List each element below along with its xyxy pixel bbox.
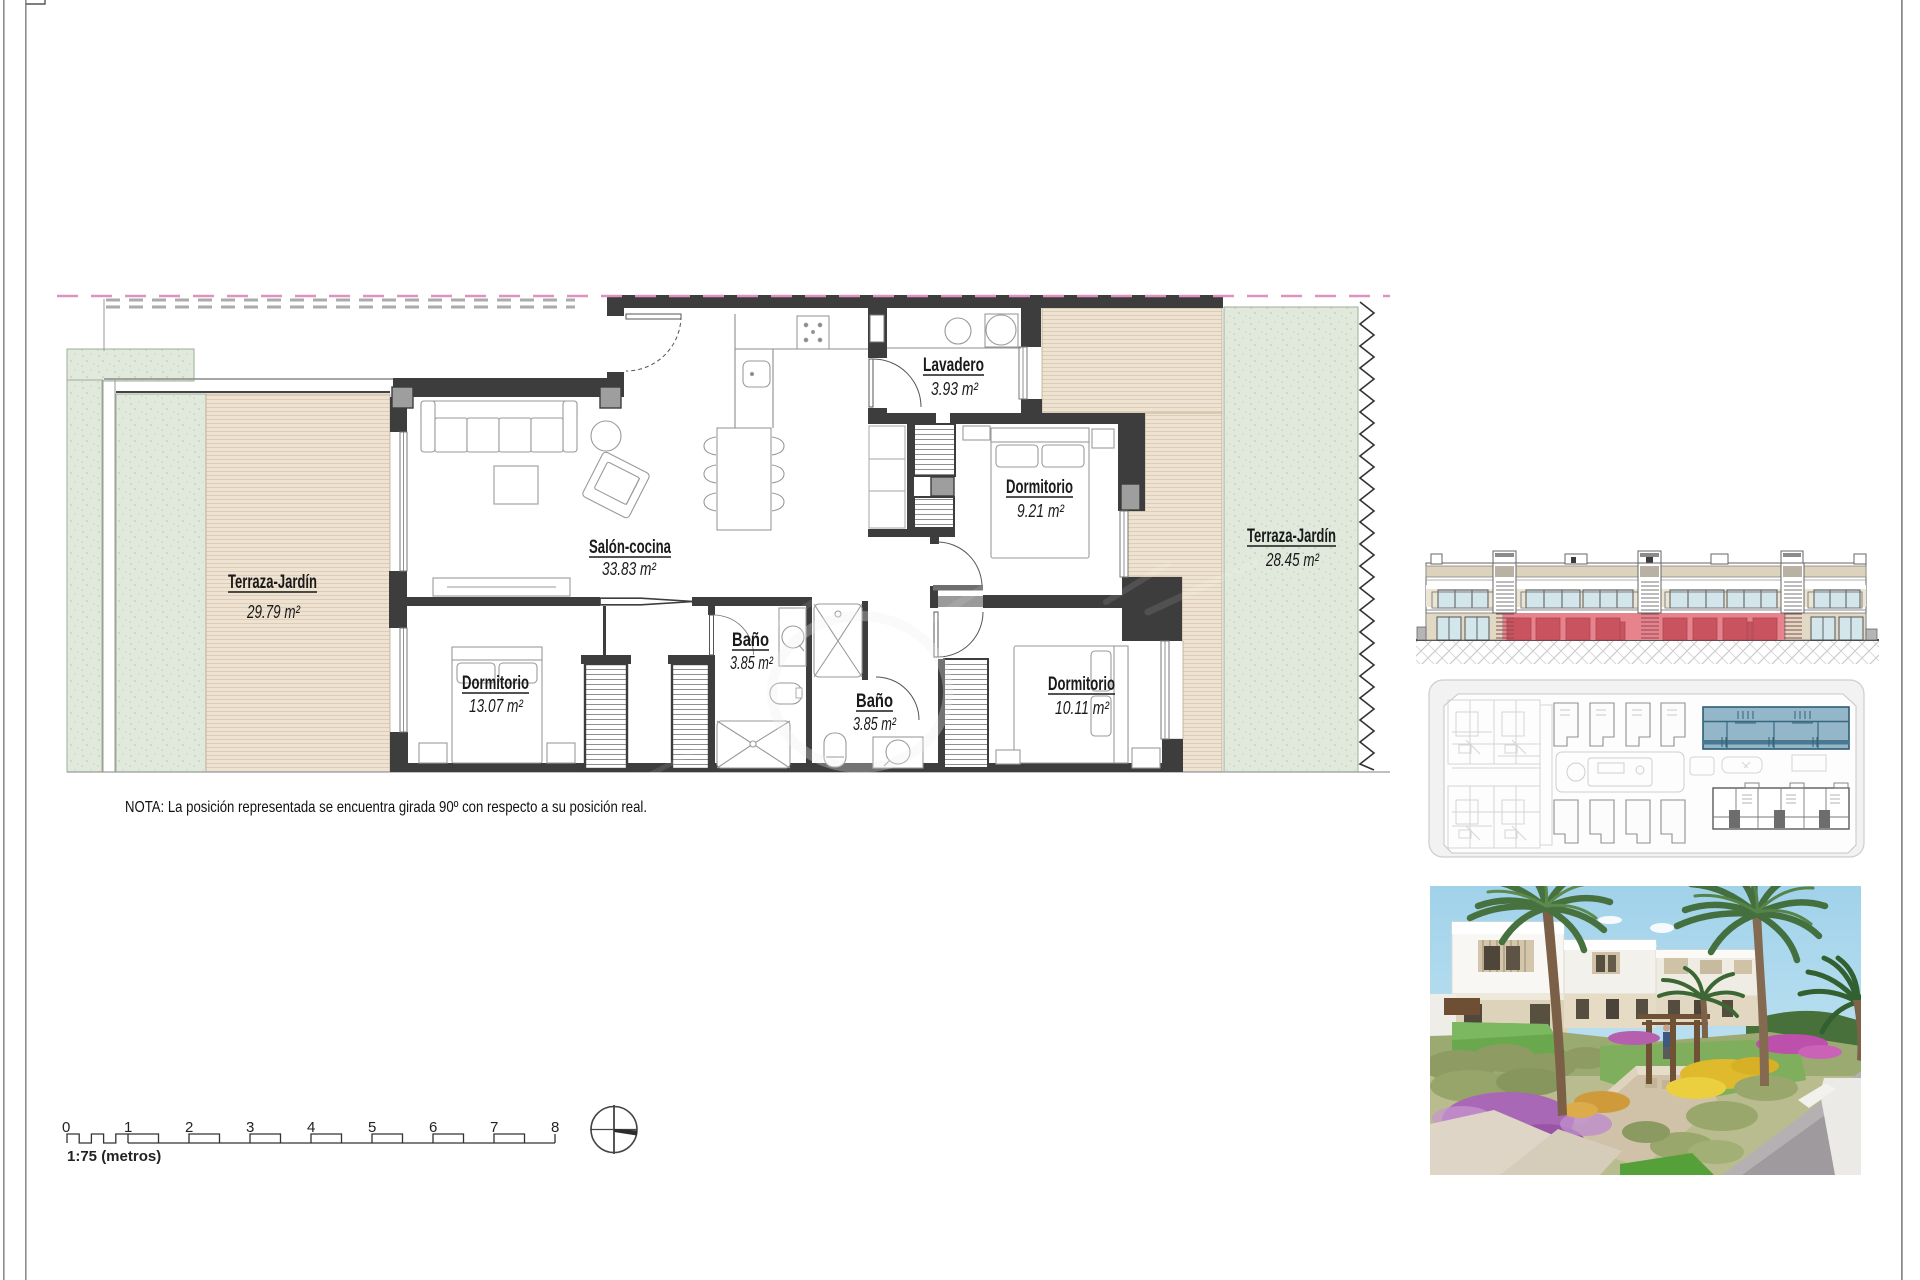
svg-text:3.85 m²: 3.85 m² <box>853 714 897 734</box>
svg-text:3: 3 <box>246 1119 254 1136</box>
svg-text:3.85 m²: 3.85 m² <box>730 653 774 673</box>
svg-text:Baño: Baño <box>856 691 893 712</box>
svg-text:29.79 m²: 29.79 m² <box>246 602 300 622</box>
svg-text:33.83 m²: 33.83 m² <box>602 559 657 579</box>
svg-text:Terraza-Jardín: Terraza-Jardín <box>1247 526 1336 547</box>
svg-text:13.07 m²: 13.07 m² <box>469 696 524 716</box>
svg-text:6: 6 <box>429 1119 437 1136</box>
svg-text:1:75 (metros): 1:75 (metros) <box>67 1148 161 1165</box>
svg-text:Baño: Baño <box>732 630 769 651</box>
svg-text:Salón-cocina: Salón-cocina <box>589 537 671 558</box>
svg-text:28.45 m²: 28.45 m² <box>1265 550 1319 570</box>
svg-text:Terraza-Jardín: Terraza-Jardín <box>228 572 317 593</box>
svg-text:Lavadero: Lavadero <box>923 355 984 376</box>
svg-text:0: 0 <box>62 1119 70 1136</box>
svg-text:4: 4 <box>307 1119 315 1136</box>
svg-text:8: 8 <box>551 1119 559 1136</box>
svg-text:NOTA: La posición representada: NOTA: La posición representada se encuen… <box>125 799 647 816</box>
svg-text:7: 7 <box>490 1119 498 1136</box>
svg-text:1: 1 <box>124 1119 132 1136</box>
svg-text:Dormitorio: Dormitorio <box>1048 674 1115 695</box>
svg-text:10.11 m²: 10.11 m² <box>1055 698 1110 718</box>
svg-text:Dormitorio: Dormitorio <box>1006 477 1073 498</box>
svg-text:2: 2 <box>185 1119 193 1136</box>
svg-text:3.93 m²: 3.93 m² <box>931 379 979 399</box>
svg-text:9.21 m²: 9.21 m² <box>1017 501 1065 521</box>
svg-text:Dormitorio: Dormitorio <box>462 673 529 694</box>
svg-text:5: 5 <box>368 1119 376 1136</box>
